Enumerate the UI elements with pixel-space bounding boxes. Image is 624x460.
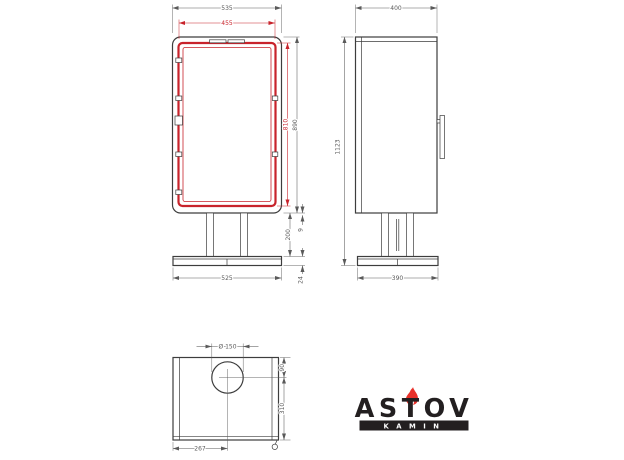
dim-flue-from-rear: 90 <box>279 364 286 372</box>
brand-logo: ASTOV KAMIN <box>355 387 474 431</box>
technical-drawing-canvas: 535 455 810 890 200 9 24 <box>0 0 624 460</box>
front-hinge-mark <box>272 152 278 157</box>
dim-depth: 400 <box>390 5 402 12</box>
dim-total-height: 1123 <box>335 139 342 154</box>
front-hinge-mark <box>176 152 182 157</box>
side-pedestal-leg <box>407 213 414 257</box>
top-view: Ø 150 90 310 267 <box>173 344 291 453</box>
dim-flue-to-front: 310 <box>279 403 286 415</box>
dim-pedestal-height: 200 <box>285 229 292 241</box>
grommet-circle <box>272 444 277 449</box>
dim-base-width: 525 <box>221 275 233 282</box>
front-pedestal-leg <box>241 213 248 257</box>
side-pedestal-leg <box>382 213 389 257</box>
dim-flue-from-left: 267 <box>194 446 206 453</box>
dim-glass-width: 455 <box>221 20 233 27</box>
dim-base-depth: 390 <box>392 275 404 282</box>
front-hinge-mark <box>176 58 182 63</box>
brand-name: ASTOV <box>355 394 474 424</box>
front-body-outline <box>173 37 282 213</box>
front-hinge-mark <box>176 190 182 195</box>
side-body-outline <box>356 37 438 213</box>
side-view: 400 1123 390 <box>335 5 445 283</box>
grommet-link <box>275 441 277 445</box>
stove-drawing: 535 455 810 890 200 9 24 <box>0 0 624 460</box>
front-top-vent-slot <box>210 40 227 43</box>
front-hinge-mark <box>176 96 182 101</box>
dim-base-height: 24 <box>298 276 305 284</box>
dim-overall-width: 535 <box>221 5 233 12</box>
front-hinge-mark <box>272 96 278 101</box>
side-door-handle <box>440 116 445 159</box>
brand-tagline: KAMIN <box>383 422 446 430</box>
front-pedestal-leg <box>207 213 214 257</box>
dim-glass-height: 810 <box>283 119 290 131</box>
front-latch-mark <box>175 116 183 125</box>
front-view: 535 455 810 890 200 9 24 <box>173 5 306 284</box>
front-top-vent-slot <box>228 40 245 43</box>
dim-body-height: 890 <box>292 119 299 131</box>
dim-flue-diameter: Ø 150 <box>218 344 236 351</box>
dim-gap: 9 <box>298 228 305 232</box>
